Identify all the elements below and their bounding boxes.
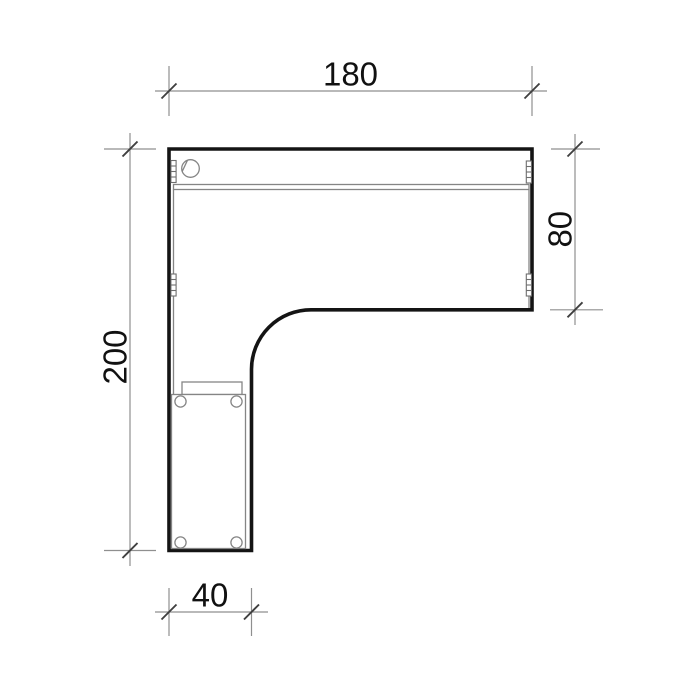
pedestal bbox=[172, 382, 246, 549]
pedestal-foot bbox=[175, 537, 186, 548]
hinge-mark-right-bottom bbox=[526, 274, 531, 296]
dimension-label-top: 180 bbox=[323, 56, 378, 93]
dimension-left: 200 bbox=[97, 133, 157, 566]
dimension-label-bottom: 40 bbox=[192, 577, 229, 614]
cable-grommet-icon bbox=[182, 160, 200, 178]
dimension-bottom: 40 bbox=[155, 577, 268, 637]
drawing-canvas: 180 80 200 40 bbox=[0, 0, 700, 700]
hinge-mark-left-top bbox=[171, 161, 176, 183]
desk-plan-drawing: 180 80 200 40 bbox=[0, 0, 700, 700]
hinge-mark-right-top bbox=[526, 161, 531, 183]
hinge-mark-left-bottom bbox=[171, 274, 176, 296]
dimension-label-left: 200 bbox=[97, 329, 134, 384]
dimension-top: 180 bbox=[155, 56, 547, 117]
dimension-label-right: 80 bbox=[542, 211, 579, 248]
dimension-right: 80 bbox=[542, 134, 604, 325]
pedestal-foot bbox=[231, 537, 242, 548]
drawer-handle bbox=[182, 382, 242, 395]
pedestal-body bbox=[172, 395, 246, 549]
pedestal-foot bbox=[175, 396, 186, 407]
desk-plan bbox=[169, 149, 532, 551]
pedestal-foot bbox=[231, 396, 242, 407]
